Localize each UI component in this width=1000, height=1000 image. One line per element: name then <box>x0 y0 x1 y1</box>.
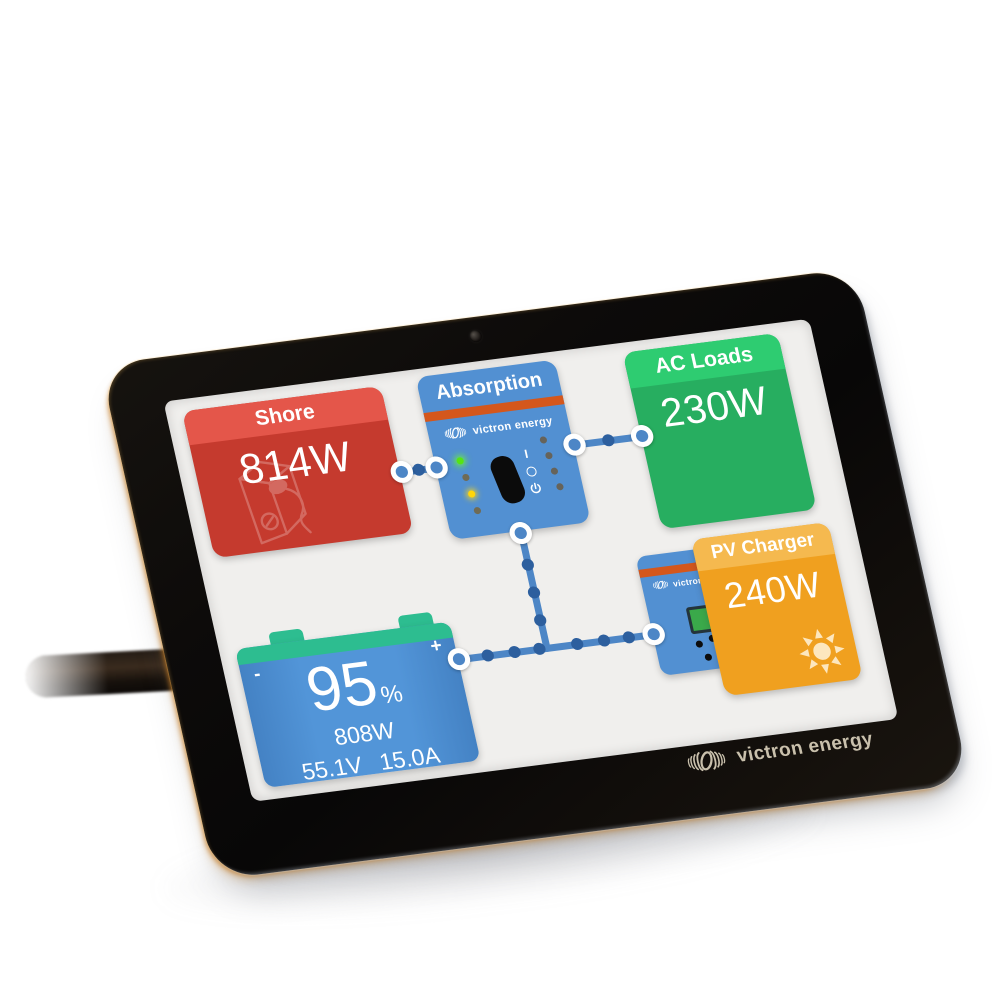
switch-off-ring-icon <box>525 466 537 477</box>
battery-current: 15.0A <box>377 742 443 776</box>
battery-soc: 95 <box>301 652 383 722</box>
battery-soc-unit: % <box>379 682 406 708</box>
sun-icon <box>792 623 853 679</box>
victron-swirl-icon <box>683 745 730 776</box>
victron-swirl-icon <box>442 424 469 442</box>
ac-loads-value: 230W <box>657 379 773 437</box>
battery-readouts: 95 % 808W 55.1V 15.0A <box>239 641 481 790</box>
tile-battery[interactable]: - + 95 % 808W 55.1V 15.0A <box>232 610 480 788</box>
power-symbol-icon <box>528 482 544 497</box>
inverter-brand-text: victron energy <box>472 415 554 437</box>
led-right-1 <box>539 436 548 444</box>
switch-on-label: I <box>523 447 529 461</box>
led-right-2 <box>545 452 554 460</box>
battery-voltage: 55.1V <box>299 751 365 785</box>
touch-screen: Shore 814W Absorption <box>163 319 898 802</box>
mppt-button-dot <box>704 653 713 661</box>
shore-header: Shore <box>182 386 388 445</box>
led-mains-on <box>456 457 465 465</box>
camera-dot <box>468 329 483 342</box>
tile-shore[interactable]: Shore 814W <box>182 386 413 558</box>
tile-pv-charger[interactable]: PV Charger 240W <box>691 522 863 696</box>
led-right-4 <box>556 483 565 491</box>
product-photo-stage: Shore 814W Absorption <box>0 0 1000 1000</box>
led-bulk-on <box>467 490 476 498</box>
shore-pedestal-icon <box>209 445 335 552</box>
pv-charger-value: 240W <box>720 563 825 617</box>
inverter-rocker-switch <box>487 453 528 506</box>
gx-touch-device-frame: Shore 814W Absorption <box>100 268 970 880</box>
led-float-off <box>473 507 482 515</box>
victron-swirl-icon <box>651 578 670 591</box>
led-absorption-off <box>462 474 471 482</box>
mppt-button-dot <box>695 640 704 648</box>
led-right-3 <box>550 467 559 475</box>
